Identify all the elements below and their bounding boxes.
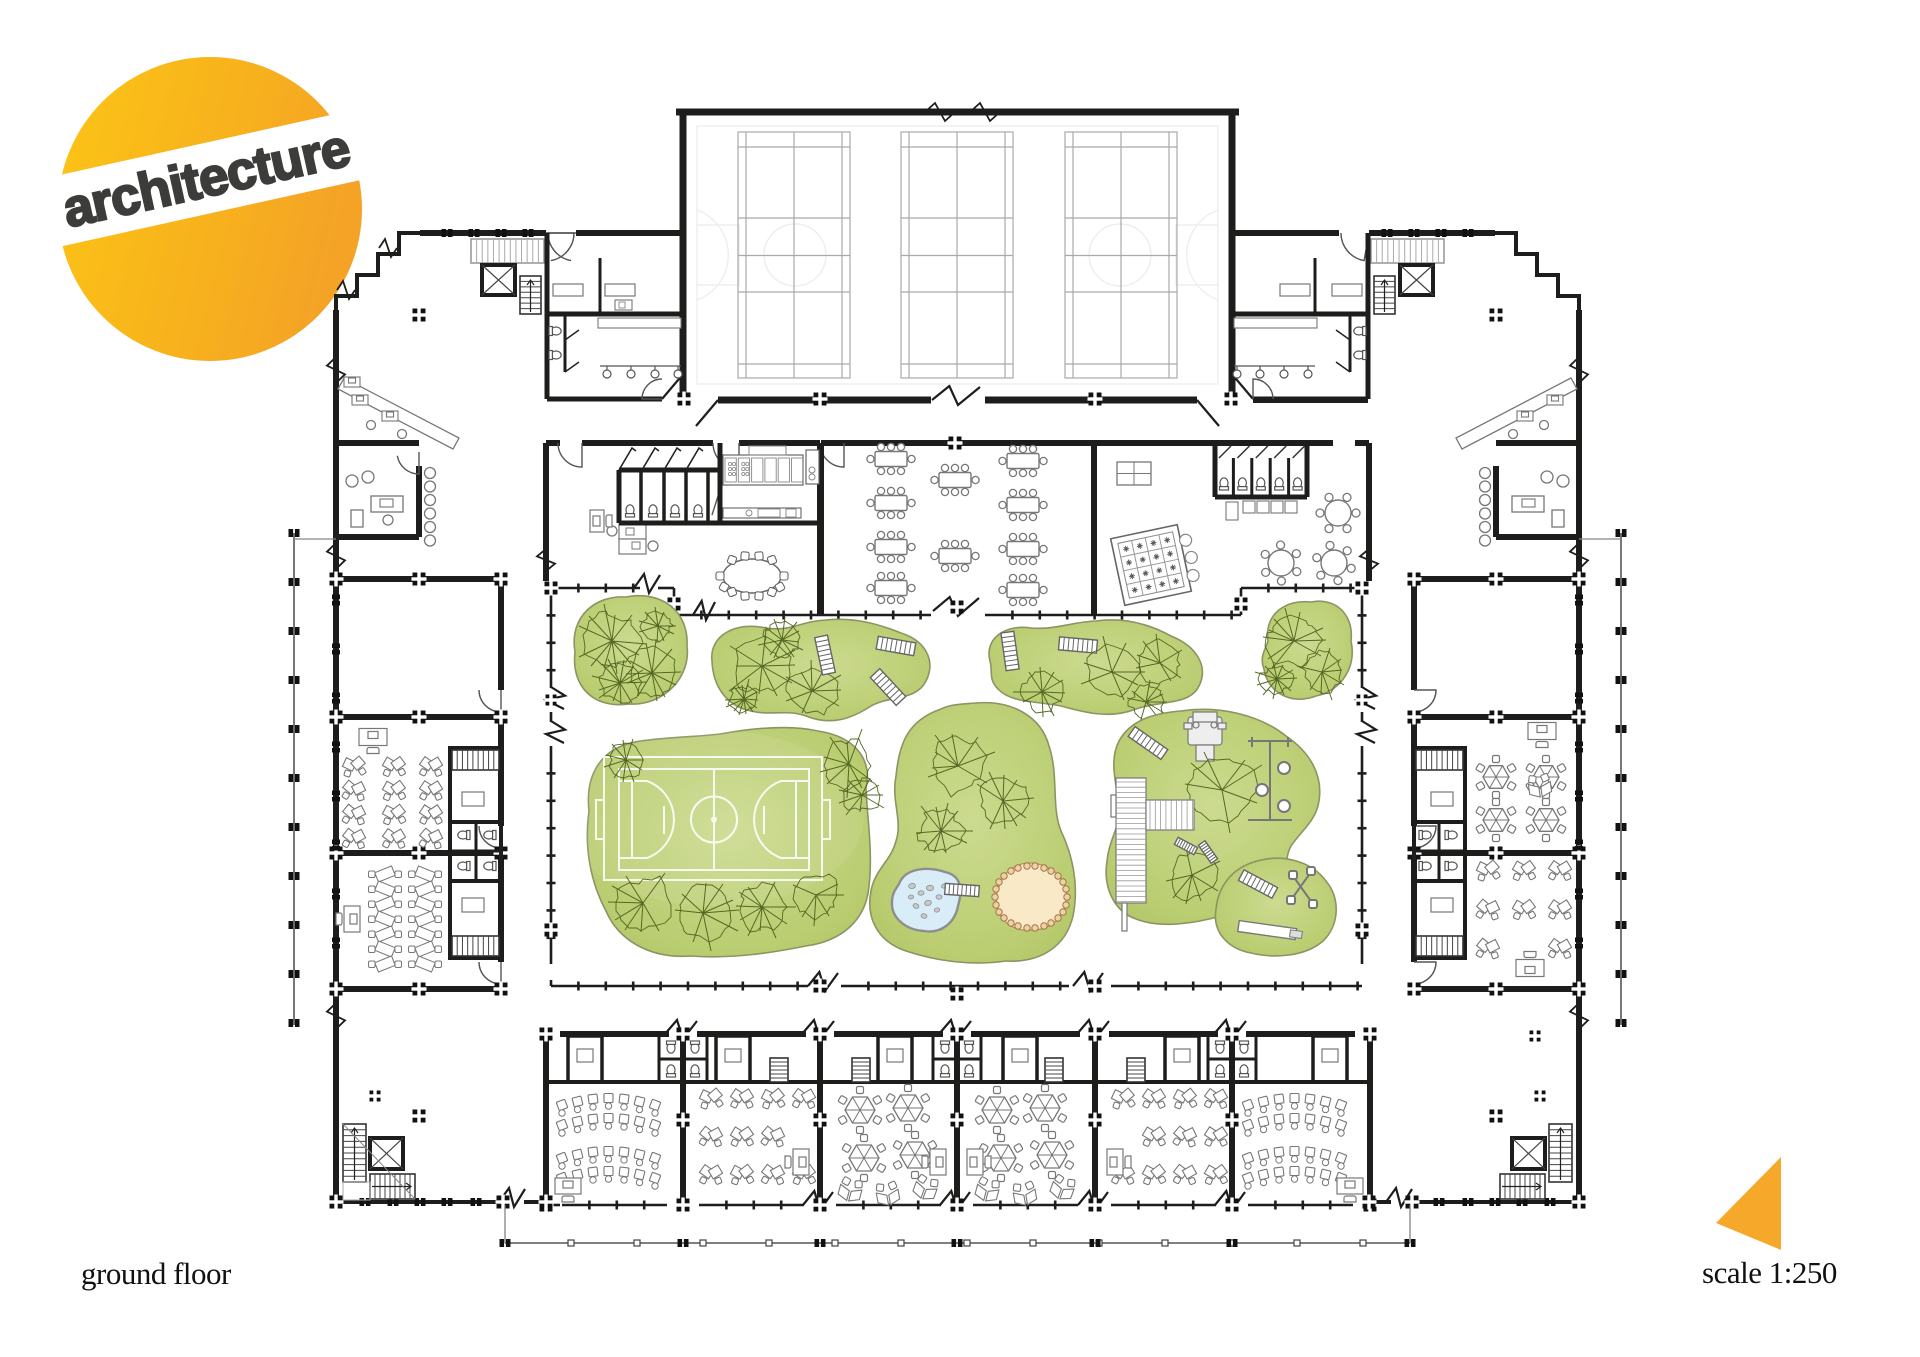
svg-text:scale 1:250: scale 1:250	[1702, 1255, 1837, 1290]
svg-text:ground floor: ground floor	[81, 1256, 232, 1291]
